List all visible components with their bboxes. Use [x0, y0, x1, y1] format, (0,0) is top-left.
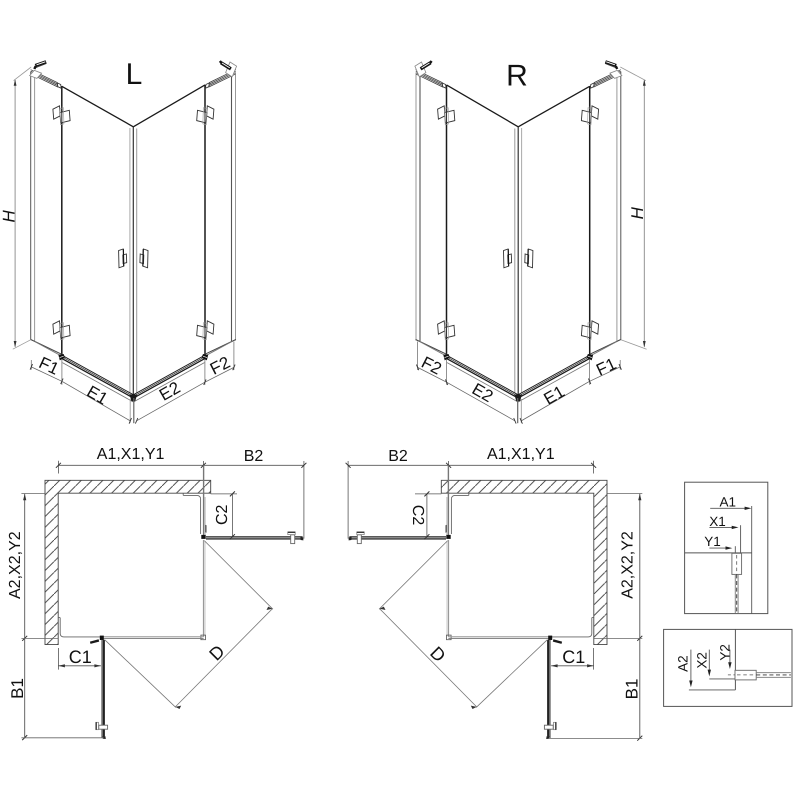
svg-text:B1: B1 [8, 678, 27, 699]
svg-text:C1: C1 [562, 647, 585, 667]
svg-text:D: D [426, 643, 449, 666]
svg-text:F1: F1 [36, 353, 62, 379]
svg-text:F2: F2 [207, 353, 233, 379]
svg-text:A1,X1,Y1: A1,X1,Y1 [487, 446, 555, 463]
svg-text:D: D [205, 641, 228, 664]
svg-text:E1: E1 [84, 382, 112, 409]
svg-text:A2: A2 [675, 655, 690, 672]
svg-text:F2: F2 [418, 353, 444, 379]
svg-text:F1: F1 [593, 354, 619, 380]
svg-text:A2,X2,Y2: A2,X2,Y2 [620, 531, 637, 599]
svg-text:C2: C2 [214, 504, 231, 525]
svg-text:A1,X1,Y1: A1,X1,Y1 [97, 446, 165, 463]
svg-text:C2: C2 [409, 505, 426, 526]
svg-text:L: L [126, 58, 143, 91]
svg-text:C1: C1 [69, 647, 92, 667]
svg-text:H: H [628, 206, 647, 219]
svg-text:B1: B1 [623, 679, 642, 700]
svg-text:A2,X2,Y2: A2,X2,Y2 [7, 531, 24, 599]
svg-text:A1: A1 [720, 494, 737, 509]
svg-text:E1: E1 [540, 382, 568, 409]
svg-text:X2: X2 [694, 652, 709, 669]
svg-text:Y1: Y1 [704, 534, 721, 549]
svg-text:B2: B2 [388, 448, 408, 465]
svg-text:B2: B2 [244, 448, 264, 465]
svg-text:H: H [0, 209, 19, 222]
svg-text:X1: X1 [709, 514, 726, 529]
svg-text:Y2: Y2 [717, 644, 732, 661]
svg-text:R: R [506, 60, 528, 93]
